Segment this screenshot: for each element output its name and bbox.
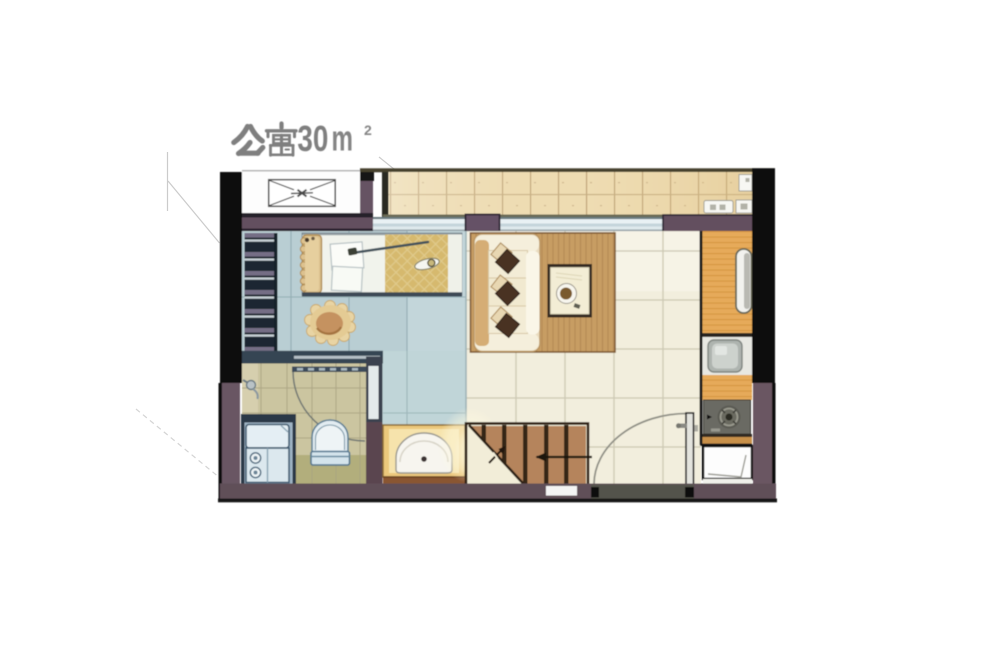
svg-text:m: m xyxy=(332,119,353,159)
svg-text:30: 30 xyxy=(297,119,328,159)
svg-text:2: 2 xyxy=(364,122,372,138)
